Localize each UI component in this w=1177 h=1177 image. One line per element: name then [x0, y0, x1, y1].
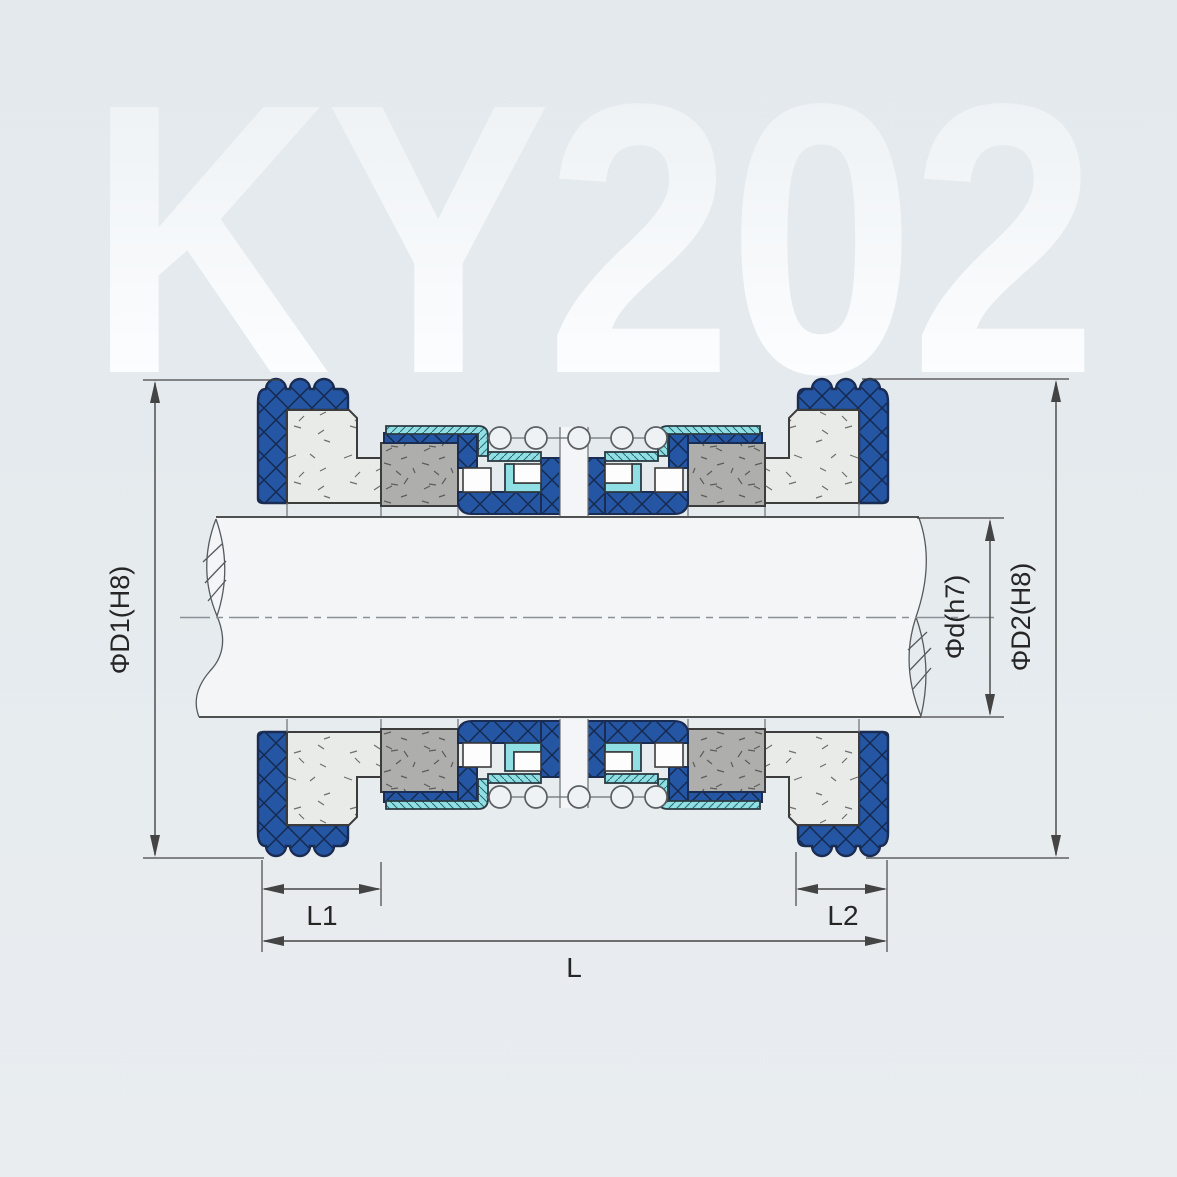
dim-label-d2: ΦD2(H8) — [1006, 563, 1036, 672]
seal-cross-section-canvas: KY202 ΦD1(H8) — [0, 0, 1177, 1177]
dim-label-d: Φd(h7) — [940, 575, 970, 660]
watermark-text: KY202 — [88, 23, 1093, 454]
dim-label-l: L — [566, 952, 582, 983]
dim-label-d1: ΦD1(H8) — [105, 566, 135, 675]
dim-label-l1: L1 — [306, 900, 337, 931]
mechanical-seal-drawing-page: KY202 ΦD1(H8) — [0, 0, 1177, 1177]
dim-label-l2: L2 — [827, 900, 858, 931]
